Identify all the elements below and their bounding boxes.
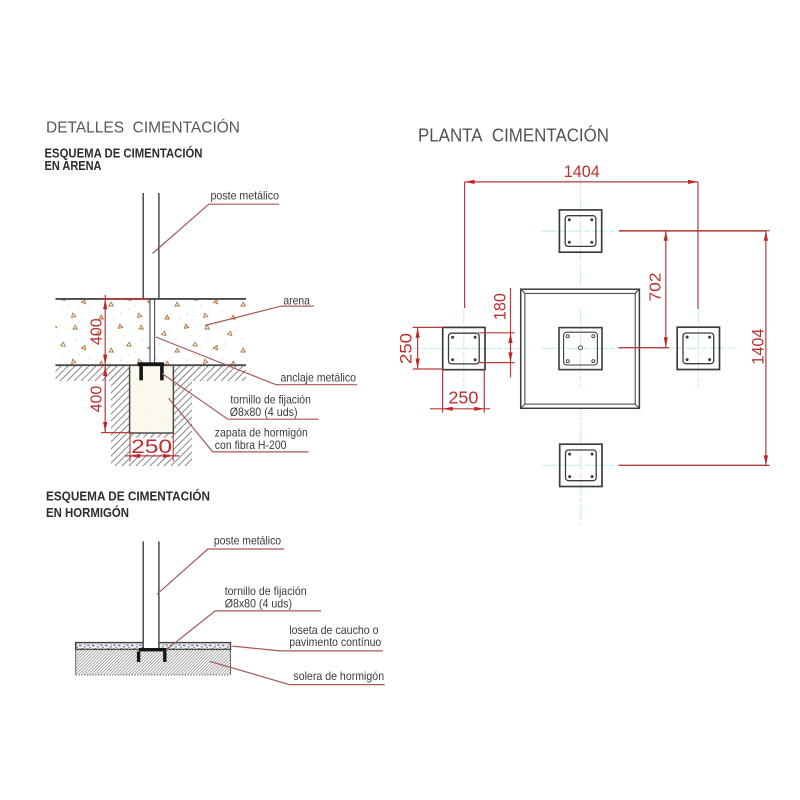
svg-text:EN HORMIGÓN: EN HORMIGÓN xyxy=(46,505,129,520)
svg-text:250: 250 xyxy=(448,387,478,407)
svg-text:Ø8x80 (4 uds): Ø8x80 (4 uds) xyxy=(230,406,298,419)
svg-text:anclaje metálico: anclaje metálico xyxy=(281,371,357,384)
svg-text:1404: 1404 xyxy=(564,163,600,181)
svg-text:arena: arena xyxy=(283,294,310,307)
svg-text:solera de hormigón: solera de hormigón xyxy=(293,670,384,683)
svg-text:PLANTA CIMENTACIÓN: PLANTA CIMENTACIÓN xyxy=(418,125,609,146)
svg-text:tornillo de fijación: tornillo de fijación xyxy=(225,585,307,598)
svg-text:zapata de hormigón: zapata de hormigón xyxy=(215,426,308,439)
svg-text:250: 250 xyxy=(397,333,415,364)
svg-text:400: 400 xyxy=(88,386,105,413)
svg-text:250: 250 xyxy=(131,436,172,458)
svg-text:pavimento contínuo: pavimento contínuo xyxy=(289,636,381,649)
svg-text:Ø8x80 (4 uds): Ø8x80 (4 uds) xyxy=(225,597,292,610)
svg-text:poste metálico: poste metálico xyxy=(214,535,281,548)
svg-text:poste metálico: poste metálico xyxy=(211,190,280,203)
svg-text:DETALLES CIMENTACIÓN: DETALLES CIMENTACIÓN xyxy=(46,120,240,137)
svg-text:180: 180 xyxy=(492,293,510,320)
svg-text:EN ARENA: EN ARENA xyxy=(45,158,103,173)
svg-text:400: 400 xyxy=(88,318,105,345)
svg-text:tornillo de fijación: tornillo de fijación xyxy=(230,394,311,407)
svg-text:1404: 1404 xyxy=(750,329,768,365)
svg-text:con fibra H-200: con fibra H-200 xyxy=(215,439,287,452)
svg-text:ESQUEMA DE CIMENTACIÓN: ESQUEMA DE CIMENTACIÓN xyxy=(46,489,210,504)
svg-text:702: 702 xyxy=(648,272,665,301)
